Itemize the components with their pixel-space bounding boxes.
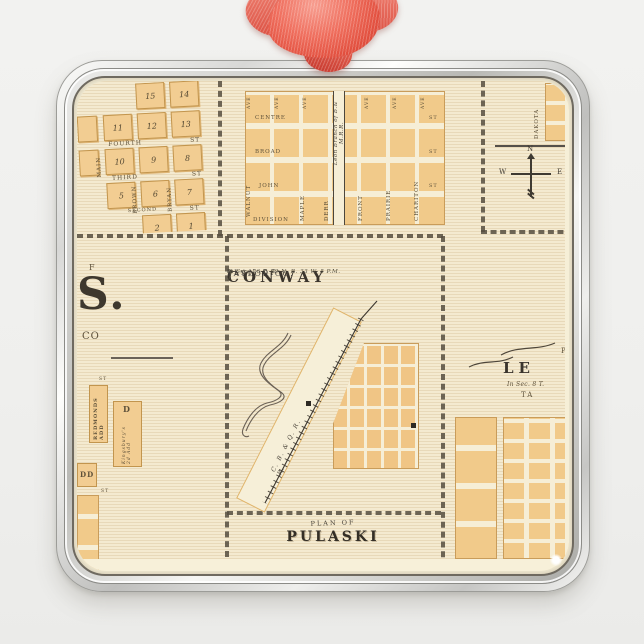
town-block: 8 xyxy=(172,144,202,171)
town-title-fragment: S. xyxy=(77,269,127,320)
addition-block: DD xyxy=(77,463,97,487)
railroad-label: Leon Branch of B.& M.R.R. xyxy=(333,100,345,166)
town-block: 1 xyxy=(176,212,206,236)
section-line xyxy=(77,234,443,238)
depot-building xyxy=(306,401,311,406)
compass-north-label: N xyxy=(527,145,533,153)
block-number: 9 xyxy=(151,155,157,164)
street-label: BRYAN xyxy=(166,168,174,212)
addition-label: Kingsbury's 2d Add xyxy=(122,416,132,464)
town-block: 14 xyxy=(169,81,199,108)
town-block: 15 xyxy=(135,82,165,109)
road-line xyxy=(111,357,173,359)
building xyxy=(411,423,416,428)
street-suffix: ST xyxy=(429,183,438,189)
street-suffix: ST xyxy=(192,170,202,178)
street-label: CHARITON xyxy=(414,167,420,221)
addition-block: REDMONDS ADD xyxy=(89,385,108,443)
block-number: 1 xyxy=(188,221,194,230)
block-letter: D xyxy=(123,404,131,414)
map-window: 15 14 11 12 13 10 9 8 5 6 7 2 1 FOURTH S… xyxy=(72,76,574,576)
block-number: 13 xyxy=(180,119,191,129)
street-label: PRAIRIE xyxy=(386,169,392,221)
street-label: JOHN xyxy=(259,183,279,189)
legal-description-fragment: In Sec. 8 T. xyxy=(507,381,544,388)
block-number: 8 xyxy=(185,153,191,162)
street-label: DAKOTA xyxy=(534,89,540,139)
vintage-plat-map: 15 14 11 12 13 10 9 8 5 6 7 2 1 FOURTH S… xyxy=(77,81,569,571)
block-number: 11 xyxy=(113,123,124,133)
ave-label: AVE xyxy=(421,93,426,109)
street-suffix: ST xyxy=(190,204,200,212)
town-block: 9 xyxy=(138,146,168,173)
compass-crossbar xyxy=(511,173,551,175)
county-fragment: TA xyxy=(521,391,534,399)
addition-block: D Kingsbury's 2d Add xyxy=(113,401,142,467)
section-line xyxy=(481,81,485,232)
ribbon-bow xyxy=(244,0,402,78)
section-line xyxy=(218,81,222,236)
map-margin xyxy=(565,81,569,571)
town-grid xyxy=(455,417,497,559)
block-number: 14 xyxy=(179,89,190,99)
street-suffix: ST xyxy=(99,377,107,382)
street-suffix: ST xyxy=(190,136,200,144)
block-number: 2 xyxy=(154,223,160,232)
street-suffix: ST xyxy=(429,115,438,121)
compass-east-label: E xyxy=(557,168,562,176)
section-line xyxy=(481,230,569,234)
panel-northwest-town: 15 14 11 12 13 10 9 8 5 6 7 2 1 FOURTH S… xyxy=(77,81,219,236)
town-grid xyxy=(503,417,569,559)
town-block: 11 xyxy=(103,114,133,141)
street-label: WALNUT xyxy=(246,165,252,217)
ave-label: AVE xyxy=(247,93,252,109)
street-label: DIVISION xyxy=(253,217,289,223)
town-block: 7 xyxy=(174,178,204,205)
block-number: 15 xyxy=(145,91,156,101)
panel-northeast-fragment: DAKOTA N W E xyxy=(487,83,569,230)
panel-west-town: F S. CO ST REDMONDS ADD D Kingsbury's 2d… xyxy=(77,239,223,571)
street-label: DERR xyxy=(324,175,330,221)
ave-label: AVE xyxy=(365,93,370,109)
street-label: MAIN xyxy=(95,133,103,177)
town-title: PULASKI xyxy=(227,529,439,545)
glass-glint xyxy=(550,554,562,566)
ave-label: AVE xyxy=(393,93,398,109)
block-number: 10 xyxy=(114,157,125,167)
map-margin xyxy=(77,559,569,571)
street-label: CENTRE xyxy=(255,115,286,121)
street-label: BROAD xyxy=(255,149,281,155)
street-suffix: ST xyxy=(101,489,109,494)
street-suffix: ST xyxy=(429,149,438,155)
ave-label: AVE xyxy=(303,93,308,109)
compass-west-label: W xyxy=(499,168,506,176)
addition-label: REDMONDS ADD xyxy=(93,388,105,440)
street-label: FRONT xyxy=(358,171,364,221)
ave-label: AVE xyxy=(275,93,280,109)
ribbon-knot xyxy=(265,0,382,62)
metal-ornament: 15 14 11 12 13 10 9 8 5 6 7 2 1 FOURTH S… xyxy=(56,60,590,592)
county-label: TAYLOR CO. xyxy=(227,269,295,278)
railroad-corridor: Leon Branch of B.& M.R.R. xyxy=(333,91,345,225)
town-title-fragment: LE xyxy=(503,359,535,377)
panel-north-town: Leon Branch of B.& M.R.R. AVE AVE AVE AV… xyxy=(231,83,479,233)
block-number: 7 xyxy=(187,187,193,196)
panel-lenox: P LE In Sec. 8 T. TA xyxy=(445,239,569,571)
county-fragment: CO xyxy=(82,331,100,342)
block-letter: DD xyxy=(80,470,94,479)
block-number: 12 xyxy=(146,121,157,131)
town-block: 13 xyxy=(171,110,201,137)
block-number: 5 xyxy=(119,191,125,200)
town-block: 12 xyxy=(137,112,167,139)
product-photo: 15 14 11 12 13 10 9 8 5 6 7 2 1 FOURTH S… xyxy=(0,0,644,644)
street-label: MAPLE xyxy=(300,175,306,221)
panel-conway: PLAN OF ( CONWAY ) In Sec. 26 T. 69 N. R… xyxy=(227,239,439,509)
block-number: 6 xyxy=(153,189,159,198)
town-grid: Leon Branch of B.& M.R.R. AVE AVE AVE AV… xyxy=(245,91,445,225)
street-label: FOURTH xyxy=(108,139,142,148)
